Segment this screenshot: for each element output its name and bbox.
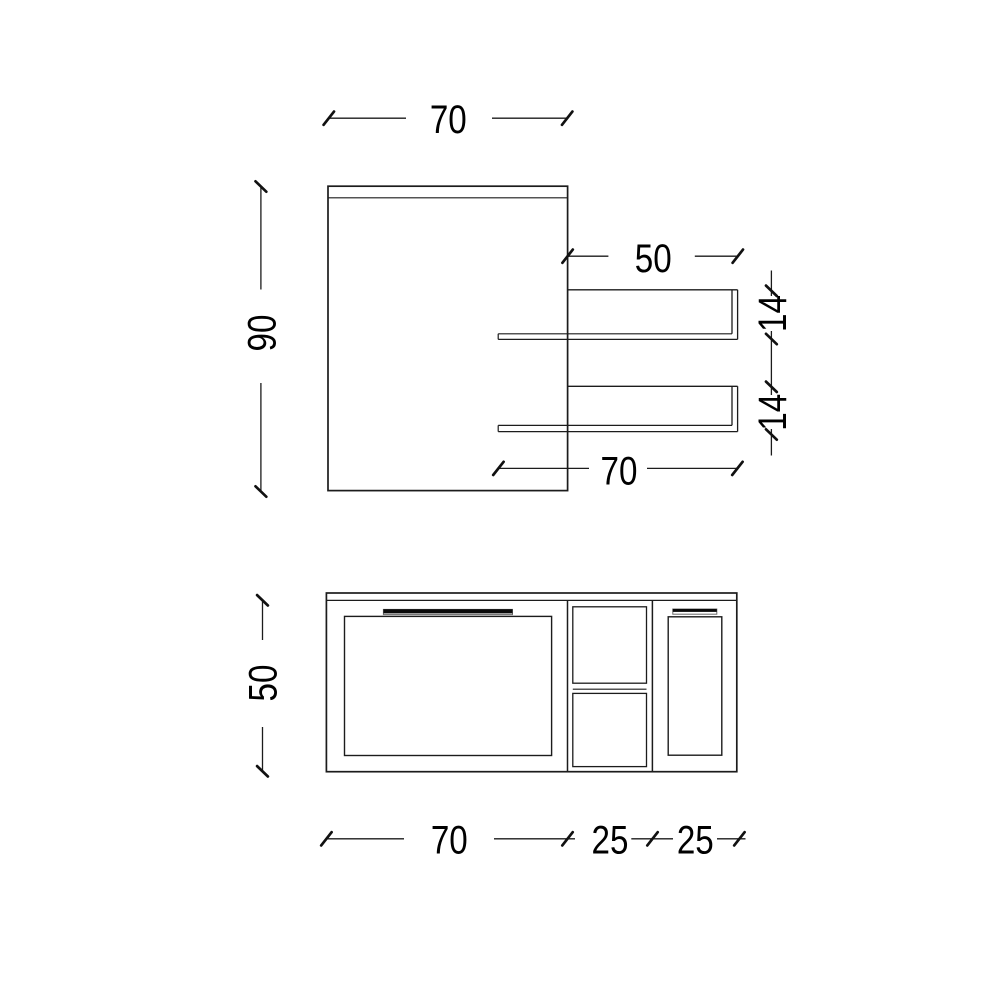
svg-text:50: 50	[635, 236, 672, 281]
svg-text:14: 14	[750, 394, 795, 431]
svg-text:25: 25	[592, 818, 629, 863]
svg-text:70: 70	[430, 97, 467, 142]
svg-text:14: 14	[750, 295, 795, 332]
svg-text:90: 90	[239, 315, 284, 352]
svg-text:25: 25	[677, 818, 714, 863]
svg-text:70: 70	[601, 449, 638, 494]
svg-text:70: 70	[431, 818, 468, 863]
svg-text:50: 50	[240, 665, 285, 702]
